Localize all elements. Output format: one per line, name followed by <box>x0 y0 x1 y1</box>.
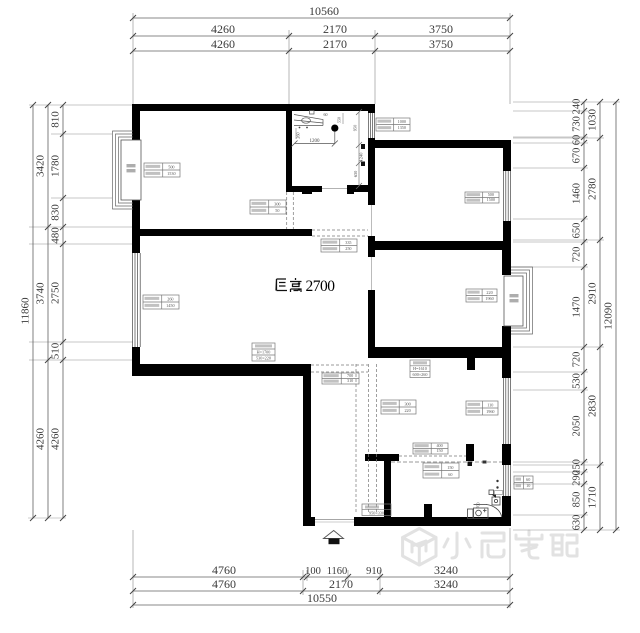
svg-text:480: 480 <box>50 227 62 244</box>
svg-text:700: 700 <box>347 373 353 378</box>
svg-text:4760: 4760 <box>212 577 236 591</box>
svg-text:300: 300 <box>404 401 410 406</box>
svg-text:810: 810 <box>50 111 62 128</box>
svg-text:335: 335 <box>345 240 351 245</box>
svg-text:310: 310 <box>347 378 353 383</box>
svg-text:670: 670 <box>572 148 583 164</box>
svg-text:1960: 1960 <box>486 409 494 414</box>
svg-text:1780: 1780 <box>50 155 62 178</box>
svg-text:150: 150 <box>436 448 442 453</box>
svg-text:300: 300 <box>274 201 280 206</box>
svg-text:12090: 12090 <box>603 302 615 330</box>
svg-text:1460: 1460 <box>572 183 583 204</box>
svg-text:3240: 3240 <box>434 563 458 577</box>
svg-text:4260: 4260 <box>211 22 235 36</box>
svg-text:950×330: 950×330 <box>369 510 384 515</box>
svg-text:1530: 1530 <box>167 171 175 176</box>
svg-text:850: 850 <box>572 492 583 508</box>
svg-text:2170: 2170 <box>323 22 347 36</box>
svg-text:4260: 4260 <box>211 37 235 51</box>
svg-text:1960: 1960 <box>485 296 493 301</box>
svg-text:2830: 2830 <box>587 395 599 418</box>
svg-text:830: 830 <box>50 204 62 221</box>
svg-text:60: 60 <box>526 477 530 482</box>
svg-text:600×260: 600×260 <box>413 372 428 377</box>
svg-text:2700: 2700 <box>306 278 336 295</box>
svg-text:220: 220 <box>486 290 492 295</box>
svg-text:1500: 1500 <box>487 197 495 202</box>
svg-text:630: 630 <box>572 515 583 531</box>
svg-text:3240: 3240 <box>434 577 458 591</box>
svg-text:3750: 3750 <box>429 37 453 51</box>
svg-text:2780: 2780 <box>587 178 599 201</box>
svg-text:910: 910 <box>366 566 382 577</box>
svg-text:3750: 3750 <box>429 22 453 36</box>
svg-text:720: 720 <box>572 352 583 368</box>
svg-text:290: 290 <box>572 470 583 486</box>
svg-text:1030: 1030 <box>587 109 599 132</box>
svg-text:10560: 10560 <box>309 4 339 18</box>
svg-text:650: 650 <box>572 223 583 239</box>
svg-text:240: 240 <box>572 99 583 115</box>
svg-text:4260: 4260 <box>50 428 62 451</box>
svg-text:550: 550 <box>337 117 342 123</box>
svg-text:11860: 11860 <box>20 297 32 325</box>
svg-text:3740: 3740 <box>35 282 47 305</box>
svg-text:260: 260 <box>167 296 173 301</box>
svg-text:2170: 2170 <box>323 37 347 51</box>
svg-text:530×220: 530×220 <box>256 356 271 361</box>
svg-text:400: 400 <box>436 443 442 448</box>
svg-text:H=1700: H=1700 <box>257 350 271 355</box>
svg-text:60: 60 <box>448 472 452 477</box>
svg-text:50: 50 <box>275 208 279 213</box>
svg-text:700: 700 <box>476 503 481 509</box>
svg-text:60: 60 <box>324 112 328 117</box>
svg-text:950: 950 <box>353 124 358 131</box>
svg-text:500: 500 <box>488 192 494 197</box>
svg-text:1240: 1240 <box>359 152 364 162</box>
svg-text:1160: 1160 <box>327 566 348 577</box>
svg-text:1450: 1450 <box>166 303 174 308</box>
svg-text:250: 250 <box>345 246 351 251</box>
svg-text:1470: 1470 <box>572 297 583 318</box>
svg-text:100: 100 <box>305 566 321 577</box>
svg-text:2750: 2750 <box>50 282 62 305</box>
svg-text:1000: 1000 <box>398 119 406 124</box>
svg-text:10550: 10550 <box>307 591 337 605</box>
svg-text:150: 150 <box>447 465 453 470</box>
svg-text:60: 60 <box>572 135 583 146</box>
svg-text:720: 720 <box>572 247 583 263</box>
svg-text:2050: 2050 <box>572 416 583 437</box>
svg-text:4760: 4760 <box>212 563 236 577</box>
svg-text:H=1610: H=1610 <box>413 366 427 371</box>
svg-text:2170: 2170 <box>329 577 353 591</box>
svg-text:10: 10 <box>526 483 530 488</box>
svg-text:630: 630 <box>353 170 358 177</box>
svg-text:4260: 4260 <box>35 428 47 451</box>
svg-text:1710: 1710 <box>587 486 599 509</box>
svg-text:1350: 1350 <box>398 125 406 130</box>
svg-text:3420: 3420 <box>35 155 47 178</box>
svg-text:500: 500 <box>168 164 174 169</box>
svg-text:530: 530 <box>572 373 583 389</box>
svg-text:2910: 2910 <box>587 282 599 305</box>
svg-text:220: 220 <box>404 408 410 413</box>
svg-text:730: 730 <box>572 116 583 132</box>
svg-text:510: 510 <box>50 342 62 359</box>
svg-text:1200: 1200 <box>310 139 321 144</box>
svg-text:110: 110 <box>487 402 493 407</box>
